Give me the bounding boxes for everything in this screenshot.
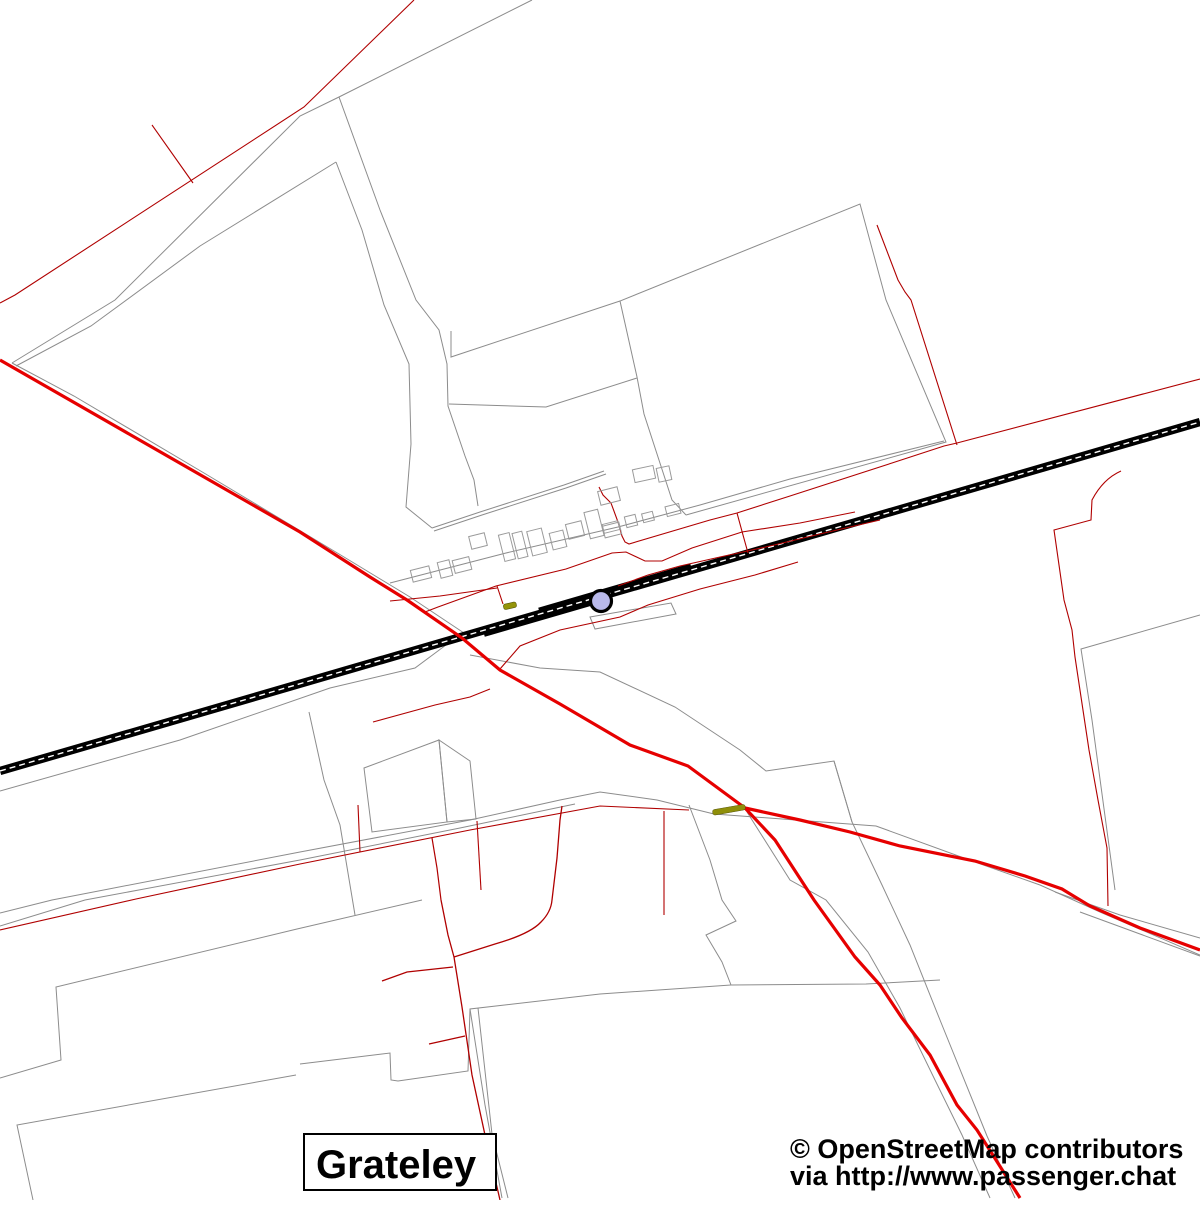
svg-text:Grateley: Grateley <box>316 1143 477 1187</box>
svg-text:via http://www.passenger.chat: via http://www.passenger.chat <box>790 1161 1176 1191</box>
svg-text:© OpenStreetMap contributors: © OpenStreetMap contributors <box>790 1134 1183 1164</box>
